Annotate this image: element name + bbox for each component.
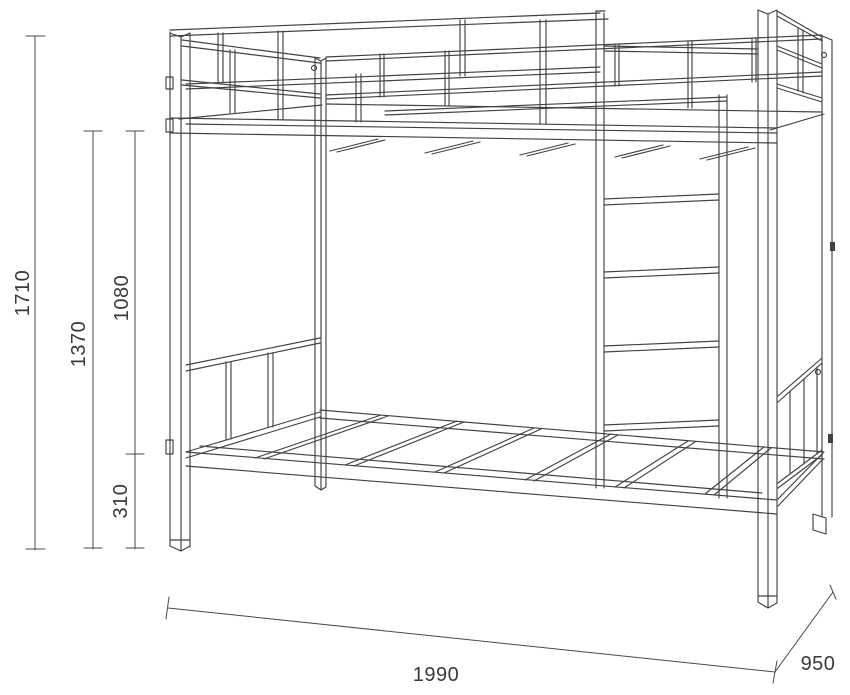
bed-frame-drawing (166, 10, 835, 608)
upper-foot-end-guard (777, 11, 822, 102)
dimension-bed-width: 950 (775, 585, 836, 675)
dimension-annotations: 1710 1370 1080 310 1990 950 (12, 36, 836, 686)
dimension-bed-length: 1990 (166, 597, 777, 686)
dim-bed-length-label: 1990 (413, 664, 460, 686)
bed-posts (170, 10, 832, 608)
upper-front-guardrail (170, 13, 758, 124)
dim-lower-to-upper-bed-label: 1080 (111, 275, 133, 322)
upper-back-guardrail (326, 35, 822, 108)
upper-head-end-guard (182, 40, 320, 113)
lower-footboard (778, 358, 823, 506)
blueprint-canvas: 1710 1370 1080 310 1990 950 (0, 0, 850, 695)
lower-headboard (186, 338, 320, 458)
dimension-lower-to-upper-bed: 1080 310 (110, 131, 144, 549)
upper-platform (170, 104, 824, 160)
dim-overall-height-label: 1710 (12, 270, 34, 317)
ladder (596, 11, 727, 498)
dim-bed-width-label: 950 (801, 653, 836, 675)
dimension-overall-height: 1710 (12, 36, 45, 550)
dim-floor-to-lower-bed-label: 310 (110, 484, 132, 519)
dim-floor-to-upper-bed-label: 1370 (68, 321, 90, 368)
dimension-floor-to-upper-bed: 1370 (68, 131, 102, 549)
bunk-bed-technical-drawing: 1710 1370 1080 310 1990 950 (0, 0, 850, 695)
lower-platform (186, 410, 824, 514)
hardware-details (166, 53, 835, 455)
